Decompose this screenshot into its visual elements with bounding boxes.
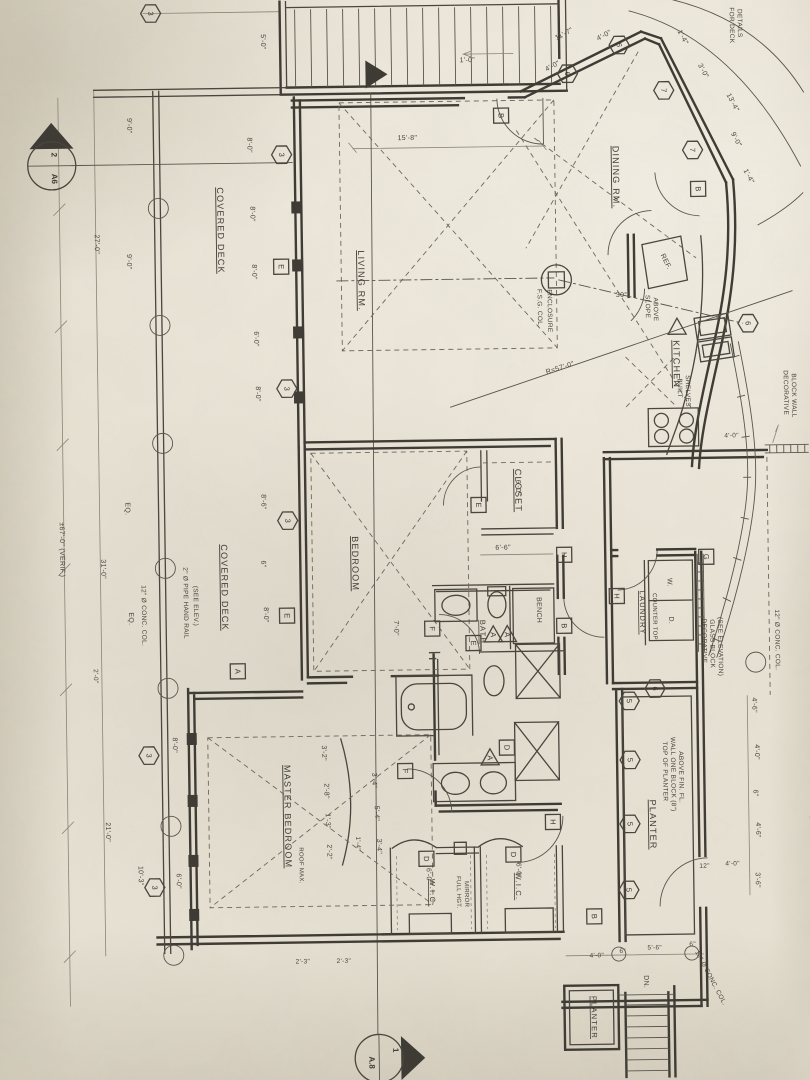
paper-grain-texture <box>0 0 810 1080</box>
floor-plan-drawing: 2 A6 1 A.8 COVERED DECKCOVERED DECKLIVIN… <box>0 0 810 1080</box>
floor-plan-photo: 2 A6 1 A.8 COVERED DECKCOVERED DECKLIVIN… <box>0 0 810 1080</box>
